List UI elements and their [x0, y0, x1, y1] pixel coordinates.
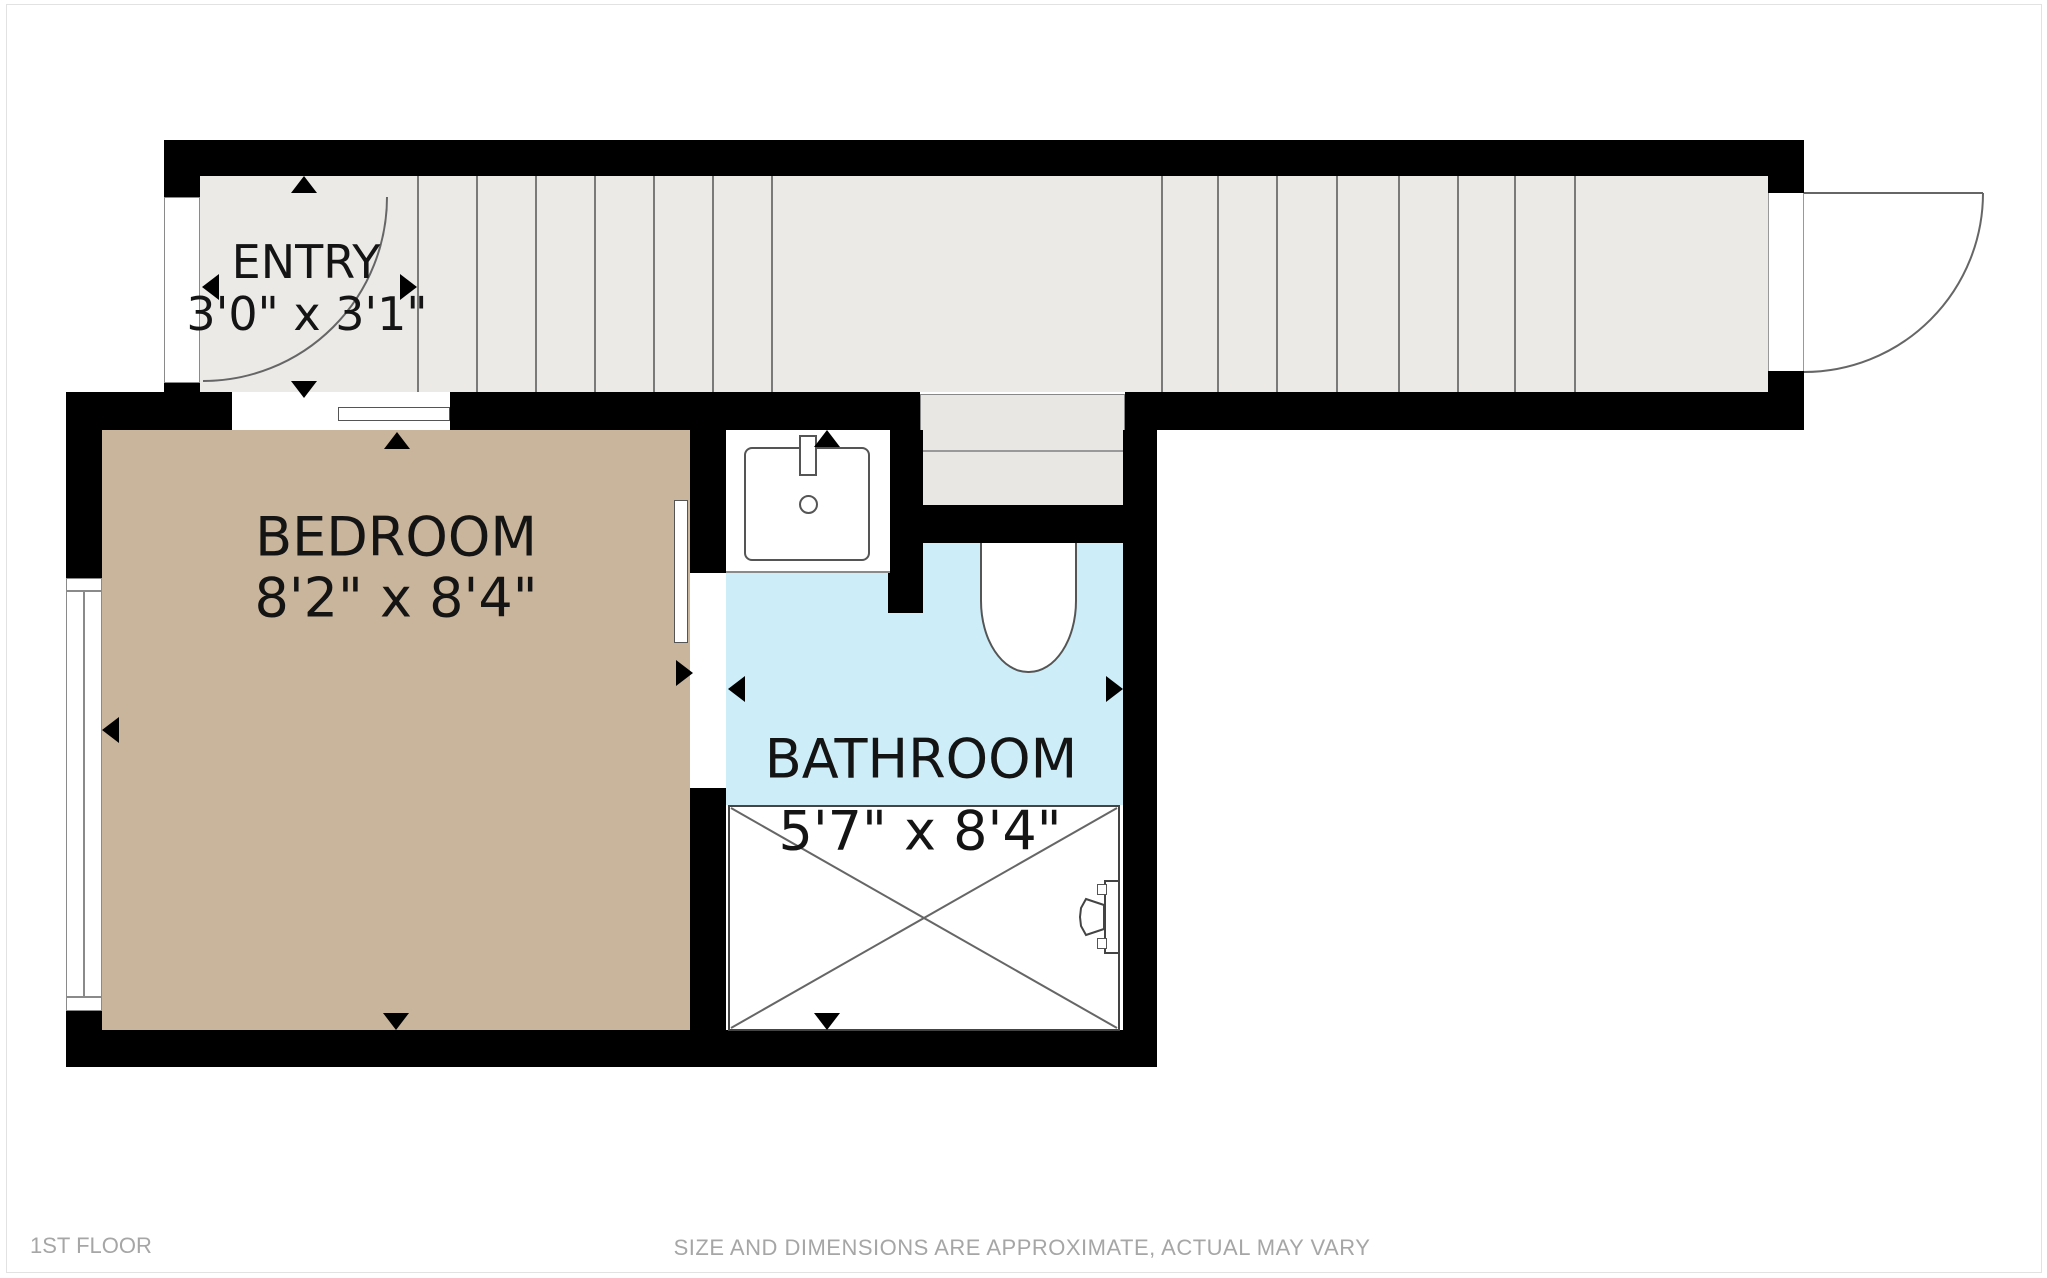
wall-bedroom-bathroom-lower: [690, 788, 726, 1030]
disclaimer-text: SIZE AND DIMENSIONS ARE APPROXIMATE, ACT…: [674, 1235, 1371, 1261]
wall-bedroom-bathroom-upper: [690, 430, 726, 573]
dimension-arrow-icon: [384, 432, 410, 449]
sliding-door-icon: [338, 407, 450, 421]
bedroom-room-label: BEDROOM: [255, 506, 537, 569]
window-frame-line: [66, 996, 102, 998]
wall-hall-right-lower: [1768, 371, 1804, 430]
entry-room-dimensions: 3'0" x 3'1": [186, 287, 427, 341]
wall-hall-right-upper: [1768, 176, 1804, 193]
wall-hall-bottom-left: [66, 392, 232, 430]
wall-hall-bottom-middle: [450, 392, 920, 430]
window-mullion-line: [83, 592, 85, 996]
wall-hall-top: [164, 140, 1804, 176]
exterior-door-swing-icon: [1804, 193, 1983, 372]
hallway-floor: [200, 176, 1768, 392]
entry-room-label: ENTRY: [232, 235, 381, 289]
floor-label: 1ST FLOOR: [30, 1233, 152, 1259]
dimension-arrow-icon: [814, 1013, 840, 1030]
step-edge-line: [921, 450, 1124, 452]
floor-plan-page: ENTRY 3'0" x 3'1" BEDROOM 8'2" x 8'4" BA…: [0, 0, 2047, 1278]
stair-landing-steps: [920, 394, 1125, 507]
wall-bedroom-left-upper: [66, 430, 102, 578]
dimension-arrow-icon: [383, 1013, 409, 1030]
wall-hall-left-upper: [164, 176, 200, 197]
dimension-arrow-icon: [814, 430, 840, 447]
pocket-door-icon: [674, 500, 688, 643]
dimension-arrow-icon: [291, 381, 317, 398]
exterior-doorway-opening: [1768, 193, 1804, 371]
bathroom-room-label: BATHROOM: [765, 728, 1078, 791]
shower-valve-tab: [1097, 884, 1107, 895]
wall-hall-bottom-right: [1125, 392, 1804, 430]
bathroom-doorway-opening: [690, 573, 726, 788]
wall-bathroom-right: [1123, 430, 1157, 1030]
dimension-arrow-icon: [676, 660, 693, 686]
shower-valve-tab: [1097, 938, 1107, 949]
wall-bottom: [66, 1030, 1157, 1067]
dimension-arrow-icon: [1106, 676, 1123, 702]
bathroom-room-dimensions: 5'7" x 8'4": [778, 800, 1061, 863]
bedroom-room-dimensions: 8'2" x 8'4": [254, 567, 537, 630]
dimension-arrow-icon: [728, 676, 745, 702]
wall-under-landing: [888, 505, 1123, 543]
sink-drain-icon: [799, 495, 818, 514]
dimension-arrow-icon: [291, 176, 317, 193]
dimension-arrow-icon: [102, 717, 119, 743]
wall-bedroom-left-lower: [66, 1011, 102, 1030]
